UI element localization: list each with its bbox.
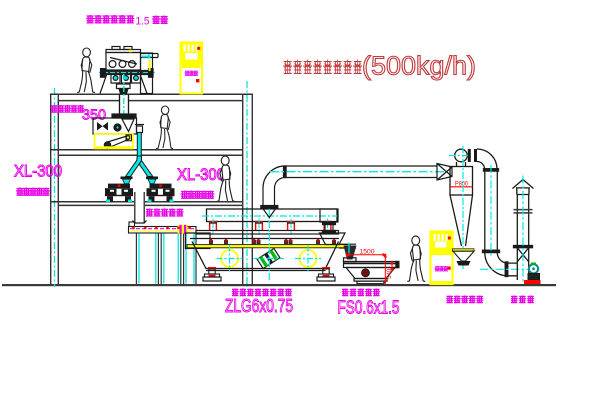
svg-text:ZLG6x0.75: ZLG6x0.75 — [225, 296, 293, 316]
svg-text:(500kg/h): (500kg/h) — [362, 53, 476, 81]
svg-text:XL-300: XL-300 — [14, 163, 62, 181]
svg-text:P800: P800 — [455, 182, 469, 188]
svg-text:FS0.6x1.5: FS0.6x1.5 — [338, 297, 400, 318]
svg-text:1500: 1500 — [360, 249, 376, 256]
svg-text:540: 540 — [386, 268, 393, 279]
svg-text:1.5: 1.5 — [136, 16, 150, 28]
svg-text:XL-300: XL-300 — [177, 166, 225, 184]
svg-text:350: 350 — [82, 108, 106, 124]
